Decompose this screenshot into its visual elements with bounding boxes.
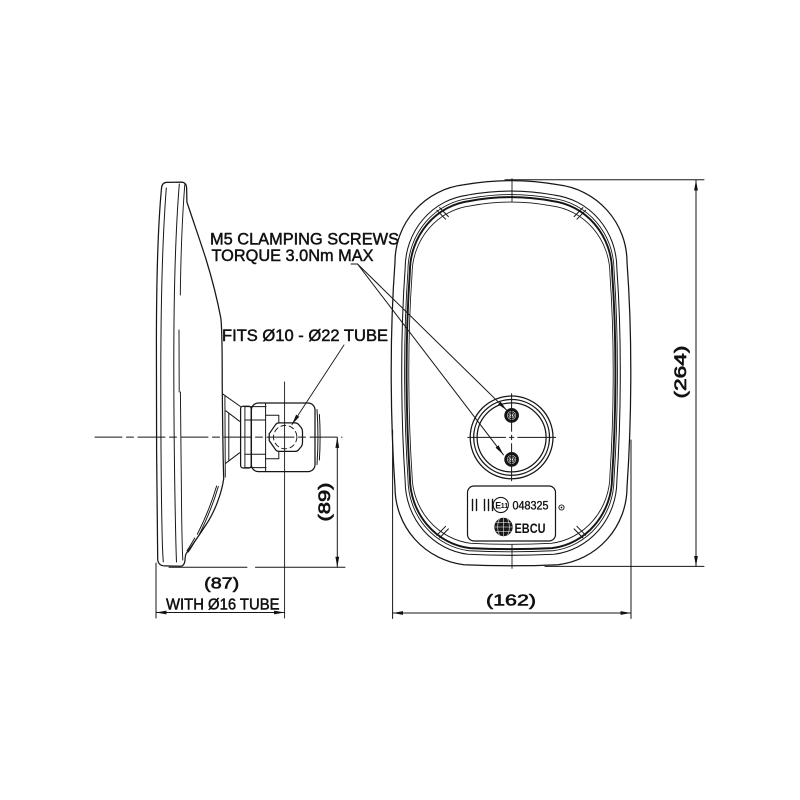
svg-text:(264): (264) [671,346,690,399]
svg-text:TORQUE 3.0Nm MAX: TORQUE 3.0Nm MAX [212,246,374,265]
svg-text:(87): (87) [204,576,239,593]
svg-text:(162): (162) [486,593,536,610]
svg-text:WITH Ø16 TUBE: WITH Ø16 TUBE [166,597,280,614]
svg-text:11: 11 [501,503,509,510]
svg-text:EBCU: EBCU [515,520,546,536]
svg-text:048325: 048325 [513,500,549,512]
svg-text:(89): (89) [315,483,334,522]
svg-text:FITS Ø10 - Ø22 TUBE: FITS Ø10 - Ø22 TUBE [222,326,388,345]
